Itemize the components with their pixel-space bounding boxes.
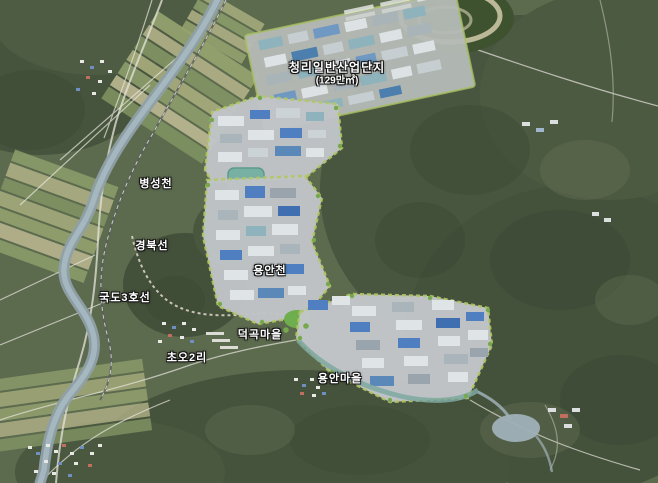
aerial-masterplan-image: 청리일반산업단지 (129만㎡) 병성천 경북선 국도3호선 용안천 덕곡마을 … [0,0,658,483]
aerial-map-canvas [0,0,658,483]
